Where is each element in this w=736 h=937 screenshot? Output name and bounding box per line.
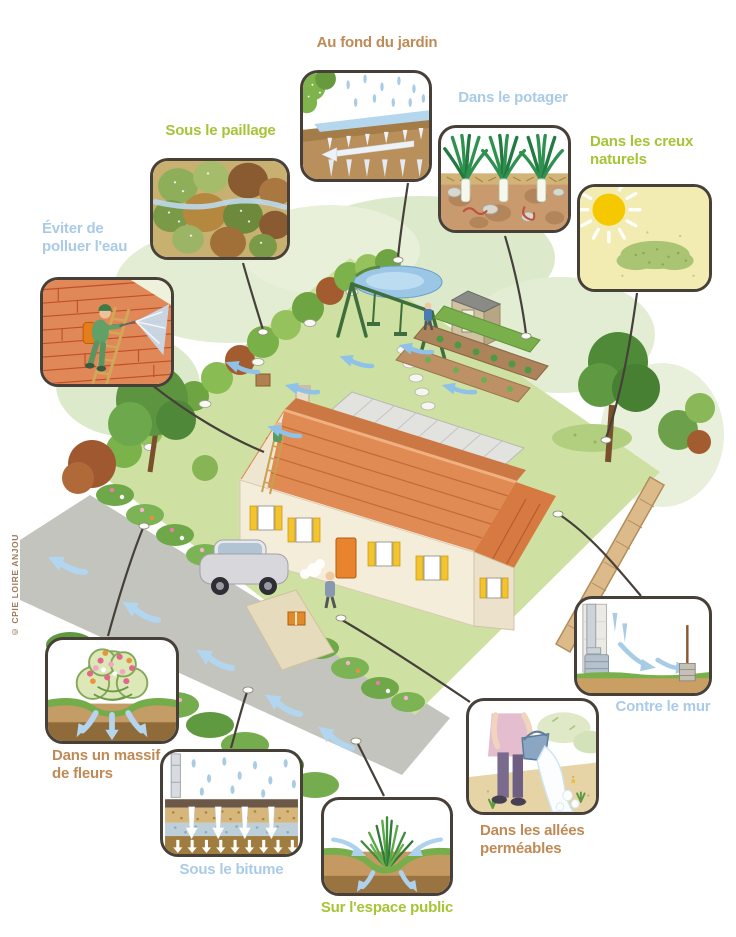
sun-grass-hollow-icon [580, 187, 709, 289]
callout-bubble-sous-le-bitume [160, 749, 303, 857]
callout-bubble-massif-de-fleurs [45, 637, 179, 744]
callout-label-espace-public: Sur l'espace public [303, 899, 471, 917]
leeks-soil-icon [441, 128, 568, 230]
callout-bubble-eviter-de-polluer [40, 277, 174, 387]
downspout-wall-icon [577, 599, 709, 693]
callout-bubble-contre-le-mur [574, 596, 712, 696]
callout-bubble-espace-public [321, 797, 453, 896]
callout-bubble-dans-le-potager [438, 125, 571, 233]
callout-label-dans-le-potager: Dans le potager [443, 89, 583, 107]
callout-label-sous-le-bitume: Sous le bitume [160, 861, 303, 879]
callout-bubble-dans-les-creux-naturels [577, 184, 712, 292]
callout-label-eviter-de-polluer: Éviter de polluer l'eau [42, 220, 150, 257]
mulch-icon [153, 161, 287, 257]
flower-bed-icon [48, 640, 176, 741]
roof-spraying-icon [43, 280, 171, 384]
callout-label-massif-de-fleurs: Dans un massif de fleurs [52, 747, 174, 784]
callout-bubble-sous-le-paillage [150, 158, 290, 260]
asphalt-layers-icon [163, 752, 300, 854]
callout-label-allees-permeables: Dans les allées perméables [480, 822, 610, 859]
infographic-canvas: Au fond du jardin Sous le paillage Dans … [0, 0, 736, 937]
watering-path-icon [469, 701, 596, 812]
copyright-credit: © CPIE LOIRE ANJOU [10, 534, 20, 637]
pond [354, 266, 442, 298]
callout-label-dans-les-creux-naturels: Dans les creux naturels [590, 133, 712, 170]
callout-label-contre-le-mur: Contre le mur [598, 698, 728, 716]
callout-label-au-fond-du-jardin: Au fond du jardin [297, 34, 457, 52]
grass-swale-icon [324, 800, 450, 893]
callout-bubble-allees-permeables [466, 698, 599, 815]
rain-infiltration-icon [303, 73, 429, 179]
callout-bubble-au-fond-du-jardin [300, 70, 432, 182]
callout-label-sous-le-paillage: Sous le paillage [148, 122, 293, 140]
